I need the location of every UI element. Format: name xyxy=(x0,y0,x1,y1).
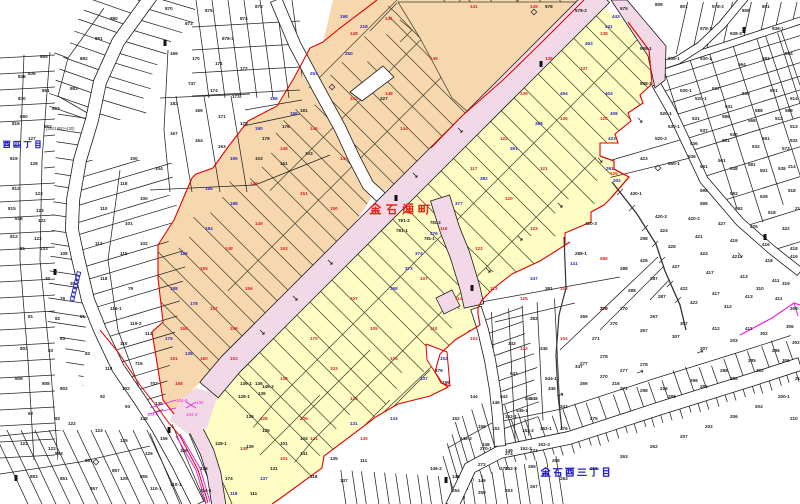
svg-text:101: 101 xyxy=(125,221,133,226)
svg-text:101: 101 xyxy=(280,441,288,446)
svg-text:207: 207 xyxy=(680,434,688,439)
svg-text:122: 122 xyxy=(34,236,42,241)
svg-text:131: 131 xyxy=(350,421,358,426)
svg-text:137: 137 xyxy=(340,478,348,483)
svg-text:123: 123 xyxy=(530,226,538,231)
svg-text:382: 382 xyxy=(530,316,538,321)
svg-text:127: 127 xyxy=(28,136,36,141)
svg-text:178: 178 xyxy=(240,121,248,126)
svg-text:416: 416 xyxy=(790,254,798,259)
svg-text:210: 210 xyxy=(790,416,798,421)
svg-text:188: 188 xyxy=(230,201,238,206)
svg-text:149: 149 xyxy=(430,56,438,61)
svg-text:227: 227 xyxy=(380,96,388,101)
svg-text:391: 391 xyxy=(510,146,518,151)
svg-text:132: 132 xyxy=(196,400,204,405)
svg-text:536: 536 xyxy=(688,154,696,159)
svg-text:161: 161 xyxy=(170,356,178,361)
svg-text:343: 343 xyxy=(560,404,568,409)
svg-text:277: 277 xyxy=(620,368,628,373)
svg-text:269: 269 xyxy=(580,314,588,319)
svg-text:586: 586 xyxy=(600,256,608,261)
svg-text:137: 137 xyxy=(580,66,588,71)
svg-text:199: 199 xyxy=(442,380,450,385)
svg-text:216: 216 xyxy=(660,386,668,391)
svg-text:532: 532 xyxy=(752,144,760,149)
svg-text:298: 298 xyxy=(690,378,698,383)
svg-text:104-5: 104-5 xyxy=(176,398,188,403)
svg-text:573: 573 xyxy=(782,146,790,151)
svg-text:136: 136 xyxy=(246,414,254,419)
svg-text:144: 144 xyxy=(470,394,478,399)
svg-text:575: 575 xyxy=(620,6,628,11)
svg-text:270: 270 xyxy=(600,306,608,311)
svg-text:79: 79 xyxy=(60,296,66,301)
svg-text:454: 454 xyxy=(560,91,568,96)
svg-text:819: 819 xyxy=(12,121,20,126)
svg-text:424: 424 xyxy=(700,251,708,256)
svg-text:285: 285 xyxy=(700,384,708,389)
svg-text:(3001800+430): (3001800+430) xyxy=(46,126,75,131)
svg-text:146-2: 146-2 xyxy=(430,466,442,471)
svg-text:254: 254 xyxy=(452,488,460,493)
svg-text:819: 819 xyxy=(10,156,18,161)
svg-text:147: 147 xyxy=(340,156,348,161)
svg-text:544-1: 544-1 xyxy=(545,376,557,381)
svg-text:853: 853 xyxy=(55,451,63,456)
svg-text:518: 518 xyxy=(768,210,776,215)
svg-text:170: 170 xyxy=(192,56,200,61)
svg-text:808: 808 xyxy=(742,8,750,13)
svg-text:82: 82 xyxy=(85,351,91,356)
svg-text:411: 411 xyxy=(775,296,783,301)
svg-text:159: 159 xyxy=(230,326,238,331)
svg-text:188: 188 xyxy=(170,286,178,291)
svg-text:374: 374 xyxy=(415,251,423,256)
svg-text:206: 206 xyxy=(730,414,738,419)
svg-text:592: 592 xyxy=(730,191,738,196)
svg-text:83: 83 xyxy=(60,336,66,341)
svg-text:376: 376 xyxy=(430,231,438,236)
svg-text:830: 830 xyxy=(18,96,26,101)
svg-text:938-1: 938-1 xyxy=(772,26,784,31)
svg-text:802: 802 xyxy=(20,346,28,351)
svg-text:186: 186 xyxy=(290,111,298,116)
svg-text:92: 92 xyxy=(28,411,34,416)
svg-text:347: 347 xyxy=(530,276,538,281)
svg-text:103: 103 xyxy=(230,356,238,361)
svg-text:134: 134 xyxy=(300,436,308,441)
svg-text:149: 149 xyxy=(255,221,263,226)
svg-text:182: 182 xyxy=(170,101,178,106)
svg-text:149: 149 xyxy=(505,448,513,453)
svg-text:148: 148 xyxy=(482,442,490,447)
svg-text:857: 857 xyxy=(112,468,120,473)
svg-text:270: 270 xyxy=(620,306,628,311)
svg-text:113: 113 xyxy=(145,331,153,336)
svg-text:169: 169 xyxy=(180,448,188,453)
svg-text:110: 110 xyxy=(430,326,438,331)
svg-text:551: 551 xyxy=(762,136,770,141)
svg-text:869: 869 xyxy=(40,54,48,59)
svg-text:423: 423 xyxy=(640,156,648,161)
svg-text:836: 836 xyxy=(18,74,26,79)
svg-text:422: 422 xyxy=(680,286,688,291)
svg-text:578-2: 578-2 xyxy=(575,8,587,13)
svg-text:421: 421 xyxy=(732,254,740,259)
svg-text:404: 404 xyxy=(605,91,613,96)
svg-text:82: 82 xyxy=(55,416,61,421)
svg-text:594: 594 xyxy=(738,62,746,67)
svg-text:716: 716 xyxy=(135,361,143,366)
svg-text:181: 181 xyxy=(300,108,308,113)
svg-text:81: 81 xyxy=(80,314,86,319)
svg-text:422: 422 xyxy=(782,226,790,231)
svg-text:802: 802 xyxy=(60,386,68,391)
svg-text:379: 379 xyxy=(435,368,443,373)
svg-text:158: 158 xyxy=(478,424,486,429)
svg-text:530: 530 xyxy=(730,132,738,137)
svg-text:408: 408 xyxy=(610,111,618,116)
svg-text:123: 123 xyxy=(20,441,28,446)
svg-text:171: 171 xyxy=(215,61,223,66)
svg-text:288: 288 xyxy=(668,394,676,399)
svg-text:307: 307 xyxy=(672,334,680,339)
svg-text:520-1: 520-1 xyxy=(695,96,707,101)
svg-text:417: 417 xyxy=(712,291,720,296)
svg-text:382: 382 xyxy=(480,176,488,181)
svg-text:425: 425 xyxy=(750,224,758,229)
svg-text:186: 186 xyxy=(205,186,213,191)
svg-text:136: 136 xyxy=(560,116,568,121)
svg-text:801: 801 xyxy=(762,4,770,9)
svg-text:107: 107 xyxy=(350,296,358,301)
svg-text:114: 114 xyxy=(105,366,113,371)
svg-text:139: 139 xyxy=(246,444,254,449)
svg-text:302: 302 xyxy=(756,368,764,373)
svg-text:781-2: 781-2 xyxy=(430,220,441,225)
svg-text:122: 122 xyxy=(500,136,508,141)
svg-text:116: 116 xyxy=(440,226,448,231)
svg-text:388: 388 xyxy=(535,121,543,126)
svg-text:418: 418 xyxy=(765,258,773,263)
svg-text:149: 149 xyxy=(478,478,486,483)
svg-text:118: 118 xyxy=(230,491,238,496)
svg-text:113: 113 xyxy=(490,286,498,291)
svg-text:302: 302 xyxy=(760,331,768,336)
svg-text:882: 882 xyxy=(80,56,88,61)
svg-text:152: 152 xyxy=(452,416,460,421)
svg-text:411: 411 xyxy=(772,278,780,283)
svg-text:275: 275 xyxy=(590,416,598,421)
svg-text:141: 141 xyxy=(570,261,578,266)
svg-text:135: 135 xyxy=(330,456,338,461)
svg-text:135: 135 xyxy=(262,428,270,433)
svg-text:781-1: 781-1 xyxy=(396,228,408,233)
svg-text:253: 253 xyxy=(505,488,513,493)
svg-text:880: 880 xyxy=(110,16,118,21)
svg-text:381: 381 xyxy=(545,286,553,291)
svg-text:148: 148 xyxy=(225,246,233,251)
svg-text:138: 138 xyxy=(600,31,608,36)
svg-text:104-2: 104-2 xyxy=(186,412,198,417)
svg-text:532: 532 xyxy=(790,138,798,143)
svg-text:302: 302 xyxy=(792,340,800,345)
svg-text:104: 104 xyxy=(560,336,568,341)
svg-text:267: 267 xyxy=(530,484,538,489)
svg-text:150: 150 xyxy=(330,206,338,211)
svg-text:501: 501 xyxy=(760,168,768,173)
svg-text:174: 174 xyxy=(225,476,233,481)
svg-text:592: 592 xyxy=(735,206,743,211)
svg-text:121: 121 xyxy=(540,166,548,171)
svg-text:118: 118 xyxy=(120,181,128,186)
svg-text:530-1: 530-1 xyxy=(668,124,680,129)
svg-text:288: 288 xyxy=(620,266,628,271)
svg-text:144: 144 xyxy=(400,126,408,131)
svg-text:128: 128 xyxy=(260,416,268,421)
svg-text:151: 151 xyxy=(300,191,308,196)
svg-text:139-1: 139-1 xyxy=(240,381,252,386)
svg-text:133: 133 xyxy=(40,246,48,251)
svg-text:203: 203 xyxy=(730,338,738,343)
svg-text:100: 100 xyxy=(130,156,138,161)
svg-text:568: 568 xyxy=(785,108,793,113)
svg-text:591: 591 xyxy=(762,56,770,61)
svg-text:816: 816 xyxy=(15,216,23,221)
svg-text:133: 133 xyxy=(350,396,358,401)
svg-text:528: 528 xyxy=(760,194,768,199)
svg-text:873: 873 xyxy=(185,21,193,26)
svg-text:30: 30 xyxy=(45,276,51,281)
svg-text:594: 594 xyxy=(785,51,793,56)
svg-text:870: 870 xyxy=(165,6,173,11)
svg-text:306: 306 xyxy=(786,324,794,329)
svg-text:420-3: 420-3 xyxy=(585,221,597,226)
svg-text:107: 107 xyxy=(420,276,428,281)
svg-text:598: 598 xyxy=(700,201,708,206)
svg-text:277: 277 xyxy=(580,361,588,366)
svg-text:812: 812 xyxy=(12,186,20,191)
svg-text:126: 126 xyxy=(145,451,153,456)
svg-text:157: 157 xyxy=(210,306,218,311)
svg-text:878: 878 xyxy=(255,4,263,9)
svg-text:202: 202 xyxy=(613,178,621,183)
svg-text:878-2: 878-2 xyxy=(222,36,234,41)
svg-text:100: 100 xyxy=(140,196,148,201)
svg-text:156: 156 xyxy=(245,286,253,291)
svg-text:588: 588 xyxy=(755,108,763,113)
svg-text:808: 808 xyxy=(15,376,23,381)
svg-text:423: 423 xyxy=(608,136,616,141)
svg-text:270: 270 xyxy=(600,374,608,379)
svg-text:276: 276 xyxy=(560,426,568,431)
svg-text:178: 178 xyxy=(190,301,198,306)
svg-text:164: 164 xyxy=(195,138,203,143)
svg-text:781-2: 781-2 xyxy=(398,218,410,223)
svg-text:138: 138 xyxy=(545,56,553,61)
svg-text:216: 216 xyxy=(612,381,620,386)
svg-text:286: 286 xyxy=(772,348,780,353)
svg-text:267: 267 xyxy=(650,314,658,319)
svg-text:373: 373 xyxy=(405,266,413,271)
svg-text:598: 598 xyxy=(700,188,708,193)
svg-text:430-1: 430-1 xyxy=(630,191,642,196)
svg-text:278: 278 xyxy=(640,362,648,367)
svg-text:263: 263 xyxy=(620,454,628,459)
svg-text:253: 253 xyxy=(310,71,318,76)
svg-text:891: 891 xyxy=(42,88,50,93)
svg-text:111: 111 xyxy=(250,491,258,496)
svg-text:586: 586 xyxy=(722,114,730,119)
svg-text:131: 131 xyxy=(270,466,278,471)
svg-text:578-1: 578-1 xyxy=(700,26,712,31)
svg-text:286: 286 xyxy=(730,376,738,381)
svg-text:103: 103 xyxy=(305,151,313,156)
svg-text:853: 853 xyxy=(30,474,38,479)
svg-text:250: 250 xyxy=(478,490,486,495)
svg-text:103: 103 xyxy=(560,286,568,291)
svg-text:938-1: 938-1 xyxy=(640,81,652,86)
svg-text:122: 122 xyxy=(38,218,46,223)
svg-text:210: 210 xyxy=(795,376,800,381)
svg-text:851: 851 xyxy=(60,476,68,481)
svg-text:153: 153 xyxy=(280,246,288,251)
svg-text:168: 168 xyxy=(175,381,183,386)
svg-text:938-3: 938-3 xyxy=(730,31,742,36)
svg-text:114-1: 114-1 xyxy=(200,488,212,493)
svg-text:368: 368 xyxy=(390,286,398,291)
svg-text:171: 171 xyxy=(218,114,226,119)
svg-text:108: 108 xyxy=(60,251,68,256)
svg-text:169: 169 xyxy=(170,51,178,56)
svg-text:128: 128 xyxy=(30,161,38,166)
svg-text:836: 836 xyxy=(28,71,36,76)
svg-text:169: 169 xyxy=(195,108,203,113)
svg-text:214: 214 xyxy=(795,206,800,211)
svg-text:118: 118 xyxy=(310,474,318,479)
svg-text:163: 163 xyxy=(218,144,226,149)
svg-text:103: 103 xyxy=(255,156,263,161)
svg-text:135: 135 xyxy=(360,436,368,441)
svg-text:102: 102 xyxy=(122,386,130,391)
svg-text:174: 174 xyxy=(210,88,218,93)
svg-text:512: 512 xyxy=(775,116,783,121)
svg-text:146-2: 146-2 xyxy=(460,436,472,441)
svg-text:883: 883 xyxy=(70,86,78,91)
svg-text:513: 513 xyxy=(790,124,798,129)
svg-text:938-1: 938-1 xyxy=(640,46,652,51)
svg-text:152-3: 152-3 xyxy=(538,442,550,447)
svg-text:319: 319 xyxy=(782,281,790,286)
svg-text:188: 188 xyxy=(270,96,278,101)
svg-text:92: 92 xyxy=(100,394,106,399)
svg-text:125: 125 xyxy=(120,438,128,443)
svg-text:346: 346 xyxy=(540,346,548,351)
svg-text:420-2: 420-2 xyxy=(688,216,700,221)
svg-text:546: 546 xyxy=(525,396,533,401)
svg-text:128-1: 128-1 xyxy=(215,441,227,446)
svg-text:128-1: 128-1 xyxy=(238,394,250,399)
svg-text:808: 808 xyxy=(655,2,663,7)
svg-text:307: 307 xyxy=(680,321,688,326)
svg-text:146: 146 xyxy=(280,146,288,151)
svg-text:139: 139 xyxy=(520,91,528,96)
svg-text:518: 518 xyxy=(788,188,796,193)
svg-text:200-1: 200-1 xyxy=(778,394,790,399)
svg-text:881: 881 xyxy=(95,36,103,41)
svg-text:419: 419 xyxy=(730,238,738,243)
svg-text:110: 110 xyxy=(120,341,128,346)
svg-text:117: 117 xyxy=(470,166,478,171)
svg-text:747: 747 xyxy=(188,81,196,86)
svg-text:141: 141 xyxy=(470,4,478,9)
svg-text:123: 123 xyxy=(36,208,44,213)
svg-text:136: 136 xyxy=(258,391,266,396)
svg-text:137: 137 xyxy=(420,376,428,381)
svg-text:141: 141 xyxy=(385,16,393,21)
svg-text:265: 265 xyxy=(528,464,536,469)
svg-text:160: 160 xyxy=(200,356,208,361)
svg-text:271: 271 xyxy=(620,386,628,391)
svg-text:298: 298 xyxy=(640,388,648,393)
svg-text:418: 418 xyxy=(790,246,798,251)
svg-text:530-1: 530-1 xyxy=(680,88,692,93)
svg-text:855: 855 xyxy=(140,474,148,479)
svg-text:176: 176 xyxy=(282,124,290,129)
svg-text:270: 270 xyxy=(500,466,508,471)
svg-text:412: 412 xyxy=(724,304,732,309)
svg-text:101: 101 xyxy=(280,456,288,461)
svg-text:104: 104 xyxy=(155,166,163,171)
svg-text:287: 287 xyxy=(658,294,666,299)
svg-text:578-2: 578-2 xyxy=(712,4,724,9)
svg-text:135: 135 xyxy=(300,416,308,421)
svg-text:501: 501 xyxy=(770,88,778,93)
svg-text:110-1: 110-1 xyxy=(170,482,182,487)
svg-text:122: 122 xyxy=(475,246,483,251)
svg-text:536: 536 xyxy=(690,141,698,146)
svg-text:152: 152 xyxy=(440,356,448,361)
svg-text:551: 551 xyxy=(722,138,730,143)
svg-text:123: 123 xyxy=(520,346,528,351)
svg-text:179: 179 xyxy=(165,336,173,341)
svg-text:270: 270 xyxy=(610,321,618,326)
svg-text:82: 82 xyxy=(55,316,61,321)
svg-text:152: 152 xyxy=(492,426,500,431)
svg-text:158: 158 xyxy=(180,326,188,331)
svg-text:550-1: 550-1 xyxy=(668,161,680,166)
svg-text:543: 543 xyxy=(500,394,508,399)
svg-text:520-2: 520-2 xyxy=(655,136,667,141)
svg-text:417: 417 xyxy=(706,270,714,275)
svg-text:119-2: 119-2 xyxy=(130,321,142,326)
svg-text:267: 267 xyxy=(640,328,648,333)
svg-text:568: 568 xyxy=(748,118,756,123)
svg-text:120: 120 xyxy=(505,196,513,201)
svg-text:812: 812 xyxy=(10,234,18,239)
svg-text:561: 561 xyxy=(718,158,726,163)
svg-text:939-1: 939-1 xyxy=(668,56,680,61)
svg-text:424: 424 xyxy=(660,228,668,233)
svg-text:543: 543 xyxy=(510,371,518,376)
svg-text:308-1: 308-1 xyxy=(790,306,800,311)
svg-text:111: 111 xyxy=(360,458,368,463)
svg-text:412: 412 xyxy=(712,326,720,331)
svg-text:288: 288 xyxy=(720,368,728,373)
svg-text:112: 112 xyxy=(95,241,103,246)
svg-text:148: 148 xyxy=(350,31,358,36)
